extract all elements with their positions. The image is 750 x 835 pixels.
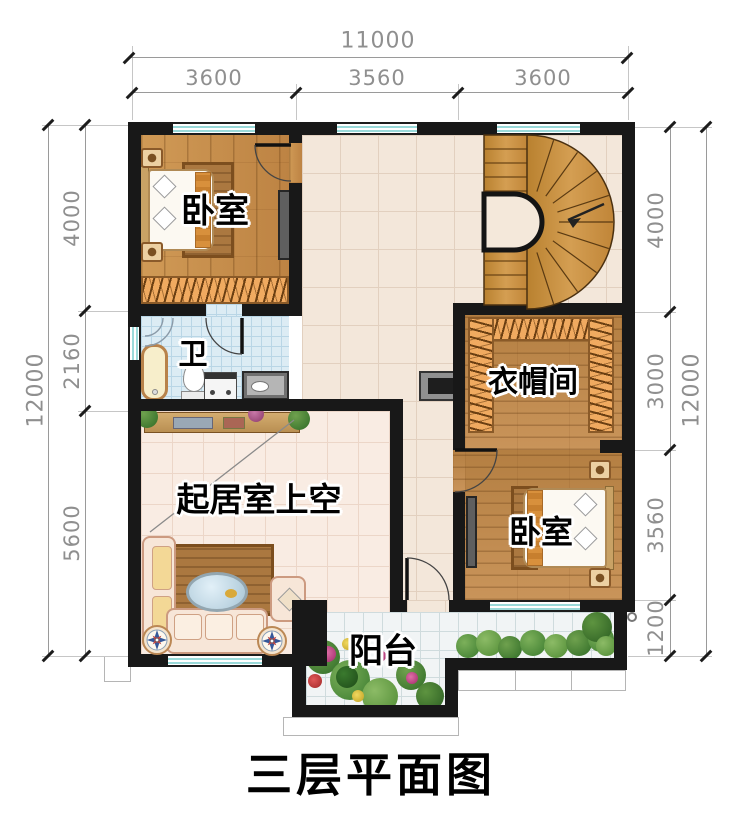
room-label-bathroom: 卫 [178,331,207,373]
wall [453,492,465,612]
wall [614,612,627,670]
vanity-counter [242,371,289,400]
potted-plant [288,408,310,430]
wall [600,440,635,453]
door-threshold [407,600,449,612]
drain-pipe [627,612,637,622]
wall [453,303,465,450]
clothes-rack [588,317,614,433]
wall [289,135,302,143]
wall [128,399,403,411]
dimension-line [129,57,627,58]
nightstand [589,460,611,480]
ledge-outline [104,656,131,682]
window [497,122,580,135]
wardrobe-rack [141,276,289,304]
washing-machine [204,372,237,400]
wall [453,303,635,315]
dimension-tick [621,52,634,65]
dim-right-segment: 3000 [644,352,668,409]
wall [289,183,302,316]
bathtub [141,344,168,401]
dim-top-total: 11000 [341,29,416,54]
dim-left-total: 12000 [24,353,49,428]
dim-right-segment: 3560 [644,496,668,553]
wall [390,399,403,612]
dim-top-segment: 3600 [514,66,571,90]
tv-stand [466,496,477,568]
floor-plan: 卧室 卫 衣帽间 起居室上空 卧室 阳台 11000 3600 3560 360… [0,0,750,835]
extension-line [635,127,712,128]
room-label-bedroom-top-left: 卧室 [181,184,249,233]
nightstand [589,568,611,588]
wall [292,705,457,717]
dimension-line [706,127,707,656]
wall [390,600,407,612]
wall [622,122,635,612]
nightstand [141,242,163,262]
room-label-cloakroom: 衣帽间 [488,357,578,401]
dimension-line [85,125,86,656]
room-label-living-void: 起居室上空 [177,473,342,521]
dimension-line [670,127,671,656]
wall [128,304,206,316]
dim-right-segment: 1200 [644,599,668,656]
door-threshold [453,450,465,492]
balcony-ledge-outline [283,717,459,736]
wall [128,122,141,667]
nightstand [141,148,163,168]
dimension-line [132,92,628,93]
window [337,122,417,135]
sofa-main [166,608,268,654]
dim-right-segment: 4000 [644,191,668,248]
dim-top-segment: 3600 [185,66,242,90]
door-threshold [206,304,242,316]
balcony-ledge-outline [458,670,626,691]
room-label-bedroom-bottom-right: 卧室 [509,507,573,553]
drawing-title: 三层平面图 [246,739,496,805]
door-threshold [289,143,302,183]
dim-right-total: 12000 [680,353,705,428]
window [128,327,141,360]
window [173,122,255,135]
wall [445,658,627,670]
dim-top-segment: 3560 [348,66,405,90]
console-shelf [144,412,300,433]
dimension-tick [123,52,136,65]
dim-left-segment: 2160 [60,332,84,389]
room-label-balcony: 阳台 [349,624,417,673]
window [490,600,580,612]
dim-left-segment: 5600 [60,504,84,561]
coffee-table [186,572,248,612]
window [168,654,262,667]
dim-left-segment: 4000 [60,189,84,246]
wall [292,600,327,666]
